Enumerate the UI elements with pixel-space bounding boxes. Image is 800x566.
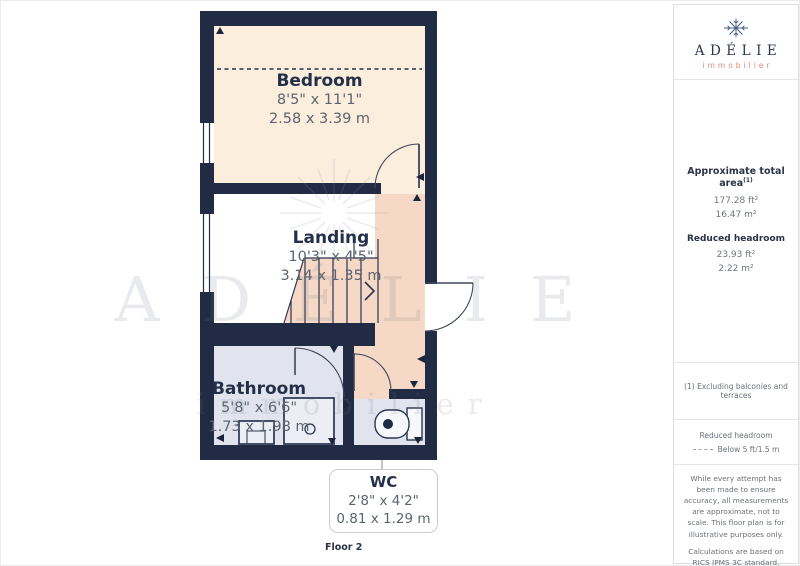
room-dimensions-metric: 0.81 x 1.29 m [330, 510, 437, 528]
landing-label: Landing 10'3" x 4'5" 3.14 x 1.35 m [231, 228, 431, 286]
standards-text: Calculations are based on RICS IPMS 3C s… [683, 546, 789, 566]
legend-title: Reduced headroom [699, 431, 772, 440]
dashed-line-sample [693, 449, 713, 450]
room-dimensions-metric: 3.14 x 1.35 m [231, 267, 431, 286]
footnote-reference: (1) [743, 177, 753, 184]
legend: Reduced headroom Below 5 ft/1.5 m [674, 420, 798, 465]
brand-logo: ADÉLIE immobilier [674, 5, 798, 80]
room-name: Landing [231, 228, 431, 248]
area-summary: Approximate total area(1) 177.28 ft² 16.… [674, 80, 798, 363]
floorplan-page: ADÉLIE immobilier Bedroom 8'5" x 11'1" 2… [0, 0, 800, 566]
room-dimensions-imperial: 8'5" x 11'1" [214, 91, 425, 110]
total-area-ft: 177.28 ft² [714, 194, 759, 208]
room-name: WC [330, 473, 437, 492]
bedroom-window [199, 123, 214, 163]
floor-label: Floor 2 [325, 542, 362, 553]
bedroom-label: Bedroom 8'5" x 11'1" 2.58 x 3.39 m [214, 71, 425, 129]
landing-window [199, 214, 214, 292]
exterior-door [425, 283, 473, 331]
info-panel: ADÉLIE immobilier Approximate total area… [673, 4, 799, 564]
total-area-heading: Approximate total area(1) [674, 166, 798, 189]
brand-tagline: immobilier [703, 61, 773, 70]
room-dimensions-imperial: 2'8" x 4'2" [330, 492, 437, 510]
total-area-m: 16.47 m² [715, 208, 756, 222]
toilet [375, 408, 422, 440]
room-dimensions-metric: 2.58 x 3.39 m [214, 110, 425, 129]
brand-name: ADÉLIE [695, 43, 783, 59]
reduced-headroom-heading: Reduced headroom [687, 234, 785, 244]
room-dimensions-metric: 1.73 x 1.98 m [194, 418, 324, 437]
snowflake-icon [723, 15, 749, 41]
wc-dimension-callout: WC 2'8" x 4'2" 0.81 x 1.29 m [329, 469, 438, 533]
legend-item: Below 5 ft/1.5 m [693, 445, 780, 454]
wc-door-gap [354, 389, 389, 399]
area-footnote: (1) Excluding balconies and terraces [674, 363, 798, 420]
total-area-label: Approximate total area [687, 166, 784, 189]
room-dimensions-imperial: 10'3" x 4'5" [231, 248, 431, 267]
disclaimer: While every attempt has been made to ens… [674, 465, 798, 563]
reduced-headroom-ft: 23.93 ft² [717, 248, 756, 262]
bathroom-label: Bathroom 5'8" x 6'6" 1.73 x 1.98 m [194, 379, 324, 436]
room-name: Bathroom [194, 379, 324, 399]
disclaimer-text: While every attempt has been made to ens… [683, 473, 789, 540]
reduced-headroom-m: 2.22 m² [718, 262, 753, 276]
room-name: Bedroom [214, 71, 425, 91]
room-dimensions-imperial: 5'8" x 6'6" [194, 399, 324, 418]
legend-item-label: Below 5 ft/1.5 m [718, 445, 780, 454]
